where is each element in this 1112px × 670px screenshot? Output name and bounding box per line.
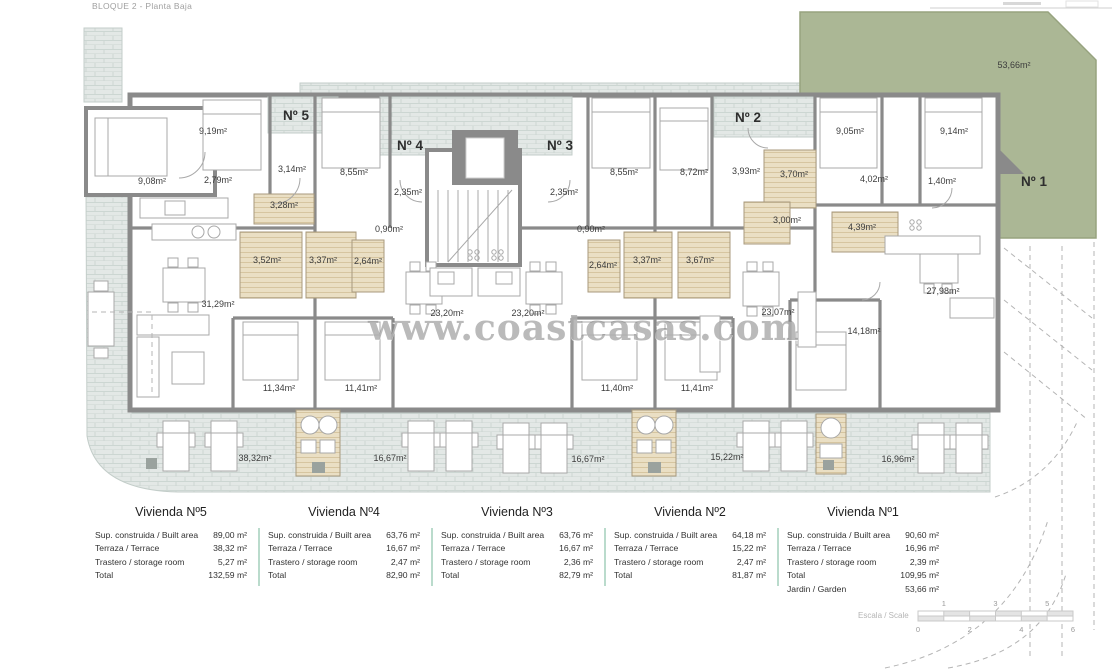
room-area-label: 11,41m²: [345, 383, 377, 393]
room-area-label: 9,19m²: [199, 126, 227, 136]
title-block-fragment: [930, 1, 1112, 8]
apartment-number-label: Nº 3: [547, 138, 573, 153]
room-area-label: 8,55m²: [610, 167, 638, 177]
room-area-label: 16,96m²: [881, 454, 914, 464]
room-area-label: 9,14m²: [940, 126, 968, 136]
scale-tick: 3: [993, 599, 997, 608]
scale-label: Escala / Scale: [858, 611, 909, 620]
scale-tick: 2: [968, 625, 972, 634]
watermark: www.coastcasas.com: [368, 307, 758, 349]
scale-tick: 5: [1045, 599, 1049, 608]
elevator-cab: [466, 138, 504, 178]
room-area-label: 9,08m²: [138, 176, 166, 186]
room-area-label: 0,90m²: [375, 224, 403, 234]
room-area-label: 9,05m²: [836, 126, 864, 136]
room-area-label: 11,34m²: [263, 383, 295, 393]
room-area-label: 3,70m²: [780, 169, 808, 179]
scale-tick: 4: [1019, 625, 1023, 634]
room-area-label: 3,00m²: [773, 215, 801, 225]
room-area-label: 2,64m²: [354, 256, 382, 266]
room-area-label: 8,55m²: [340, 167, 368, 177]
room-area-label: 14,18m²: [847, 326, 880, 336]
room-area-label: 11,40m²: [601, 383, 633, 393]
room-area-label: 2,35m²: [394, 187, 422, 197]
apartment-number-label: Nº 1: [1021, 174, 1047, 189]
room-area-label: 8,72m²: [680, 167, 708, 177]
room-area-label: 2,35m²: [550, 187, 578, 197]
room-area-label: 3,52m²: [253, 255, 281, 265]
room-area-label: 38,32m²: [238, 453, 271, 463]
apartment-number-label: Nº 4: [397, 138, 423, 153]
room-area-label: 16,67m²: [571, 454, 604, 464]
drawing-title: BLOQUE 2 - Planta Baja: [92, 1, 192, 11]
room-area-label: 3,14m²: [278, 164, 306, 174]
room-area-label: 4,02m²: [860, 174, 888, 184]
planter: [146, 458, 157, 469]
room-area-label: 3,67m²: [686, 255, 714, 265]
room-area-label: 16,67m²: [373, 453, 406, 463]
room-area-label: 2,64m²: [589, 260, 617, 270]
bbq-module: [296, 410, 340, 476]
room-area-label: 3,93m²: [732, 166, 760, 176]
room-area-label: 15,22m²: [710, 452, 743, 462]
floor-plan-sheet: Escala / Scale 1 3 5 0 2 4 6 9,08m²9,19m…: [0, 0, 1112, 670]
room-area-label: 2,79m²: [204, 175, 232, 185]
room-area-label: 53,66m²: [997, 60, 1030, 70]
room-area-label: 27,98m²: [926, 286, 959, 296]
room-area-label: 11,41m²: [681, 383, 713, 393]
room-area-label: 3,37m²: [633, 255, 661, 265]
scale-tick: 0: [916, 625, 920, 634]
room-area-label: 31,29m²: [201, 299, 234, 309]
room-area-label: 1,40m²: [928, 176, 956, 186]
scale-bar: Escala / Scale 1 3 5 0 2 4 6: [858, 599, 1075, 634]
stairwell: [427, 130, 520, 265]
room-area-label: 3,37m²: [309, 255, 337, 265]
apartment-number-label: Nº 2: [735, 110, 761, 125]
scale-tick: 1: [942, 599, 946, 608]
scale-tick: 6: [1071, 625, 1075, 634]
bbq-module: [816, 414, 846, 474]
room-area-label: 0,90m²: [577, 224, 605, 234]
apartment-number-label: Nº 5: [283, 108, 309, 123]
room-area-label: 3,28m²: [270, 200, 298, 210]
room-area-label: 4,39m²: [848, 222, 876, 232]
bbq-module: [632, 410, 676, 476]
